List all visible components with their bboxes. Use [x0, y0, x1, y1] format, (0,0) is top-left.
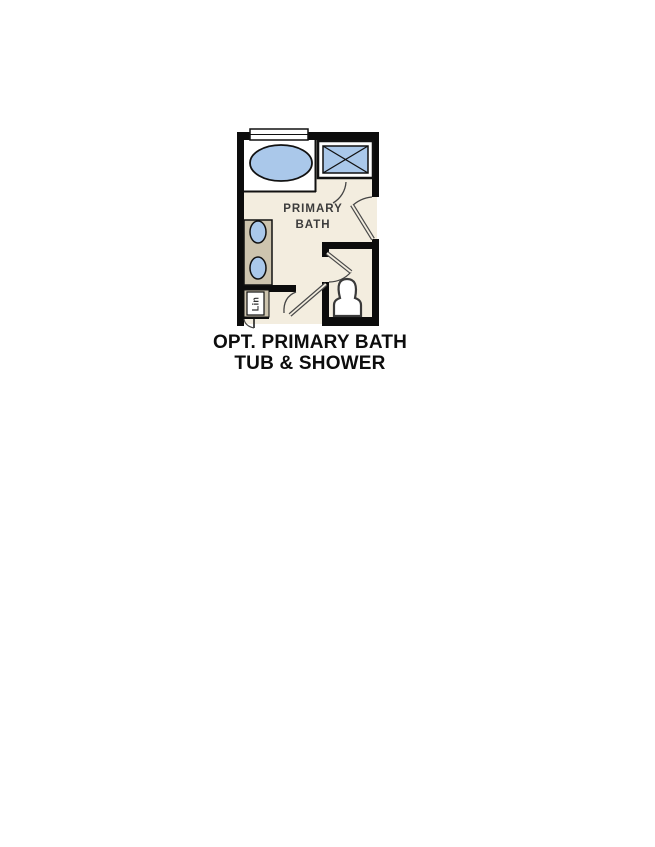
sink-top — [250, 221, 266, 243]
room-label-line2: BATH — [295, 219, 330, 231]
caption-line1: OPT. PRIMARY BATH — [160, 333, 460, 354]
sink-bottom — [250, 257, 266, 279]
wall-bottom-wc — [322, 317, 379, 326]
vanity-icon — [244, 220, 272, 285]
floor-plan-image: PRIMARY BATH Lin — [0, 0, 655, 847]
page: PRIMARY BATH Lin — [0, 0, 655, 847]
caption-line2: TUB & SHOWER — [160, 354, 460, 375]
plan-caption: OPT. PRIMARY BATH TUB & SHOWER — [160, 333, 460, 374]
bathtub-icon — [250, 145, 312, 181]
wall-right-lower — [372, 239, 379, 326]
wall-wc-top — [328, 242, 379, 249]
room-label-line1: PRIMARY — [283, 203, 343, 215]
window-icon — [250, 129, 308, 140]
linen-label: Lin — [251, 297, 261, 311]
wall-left — [237, 132, 244, 326]
